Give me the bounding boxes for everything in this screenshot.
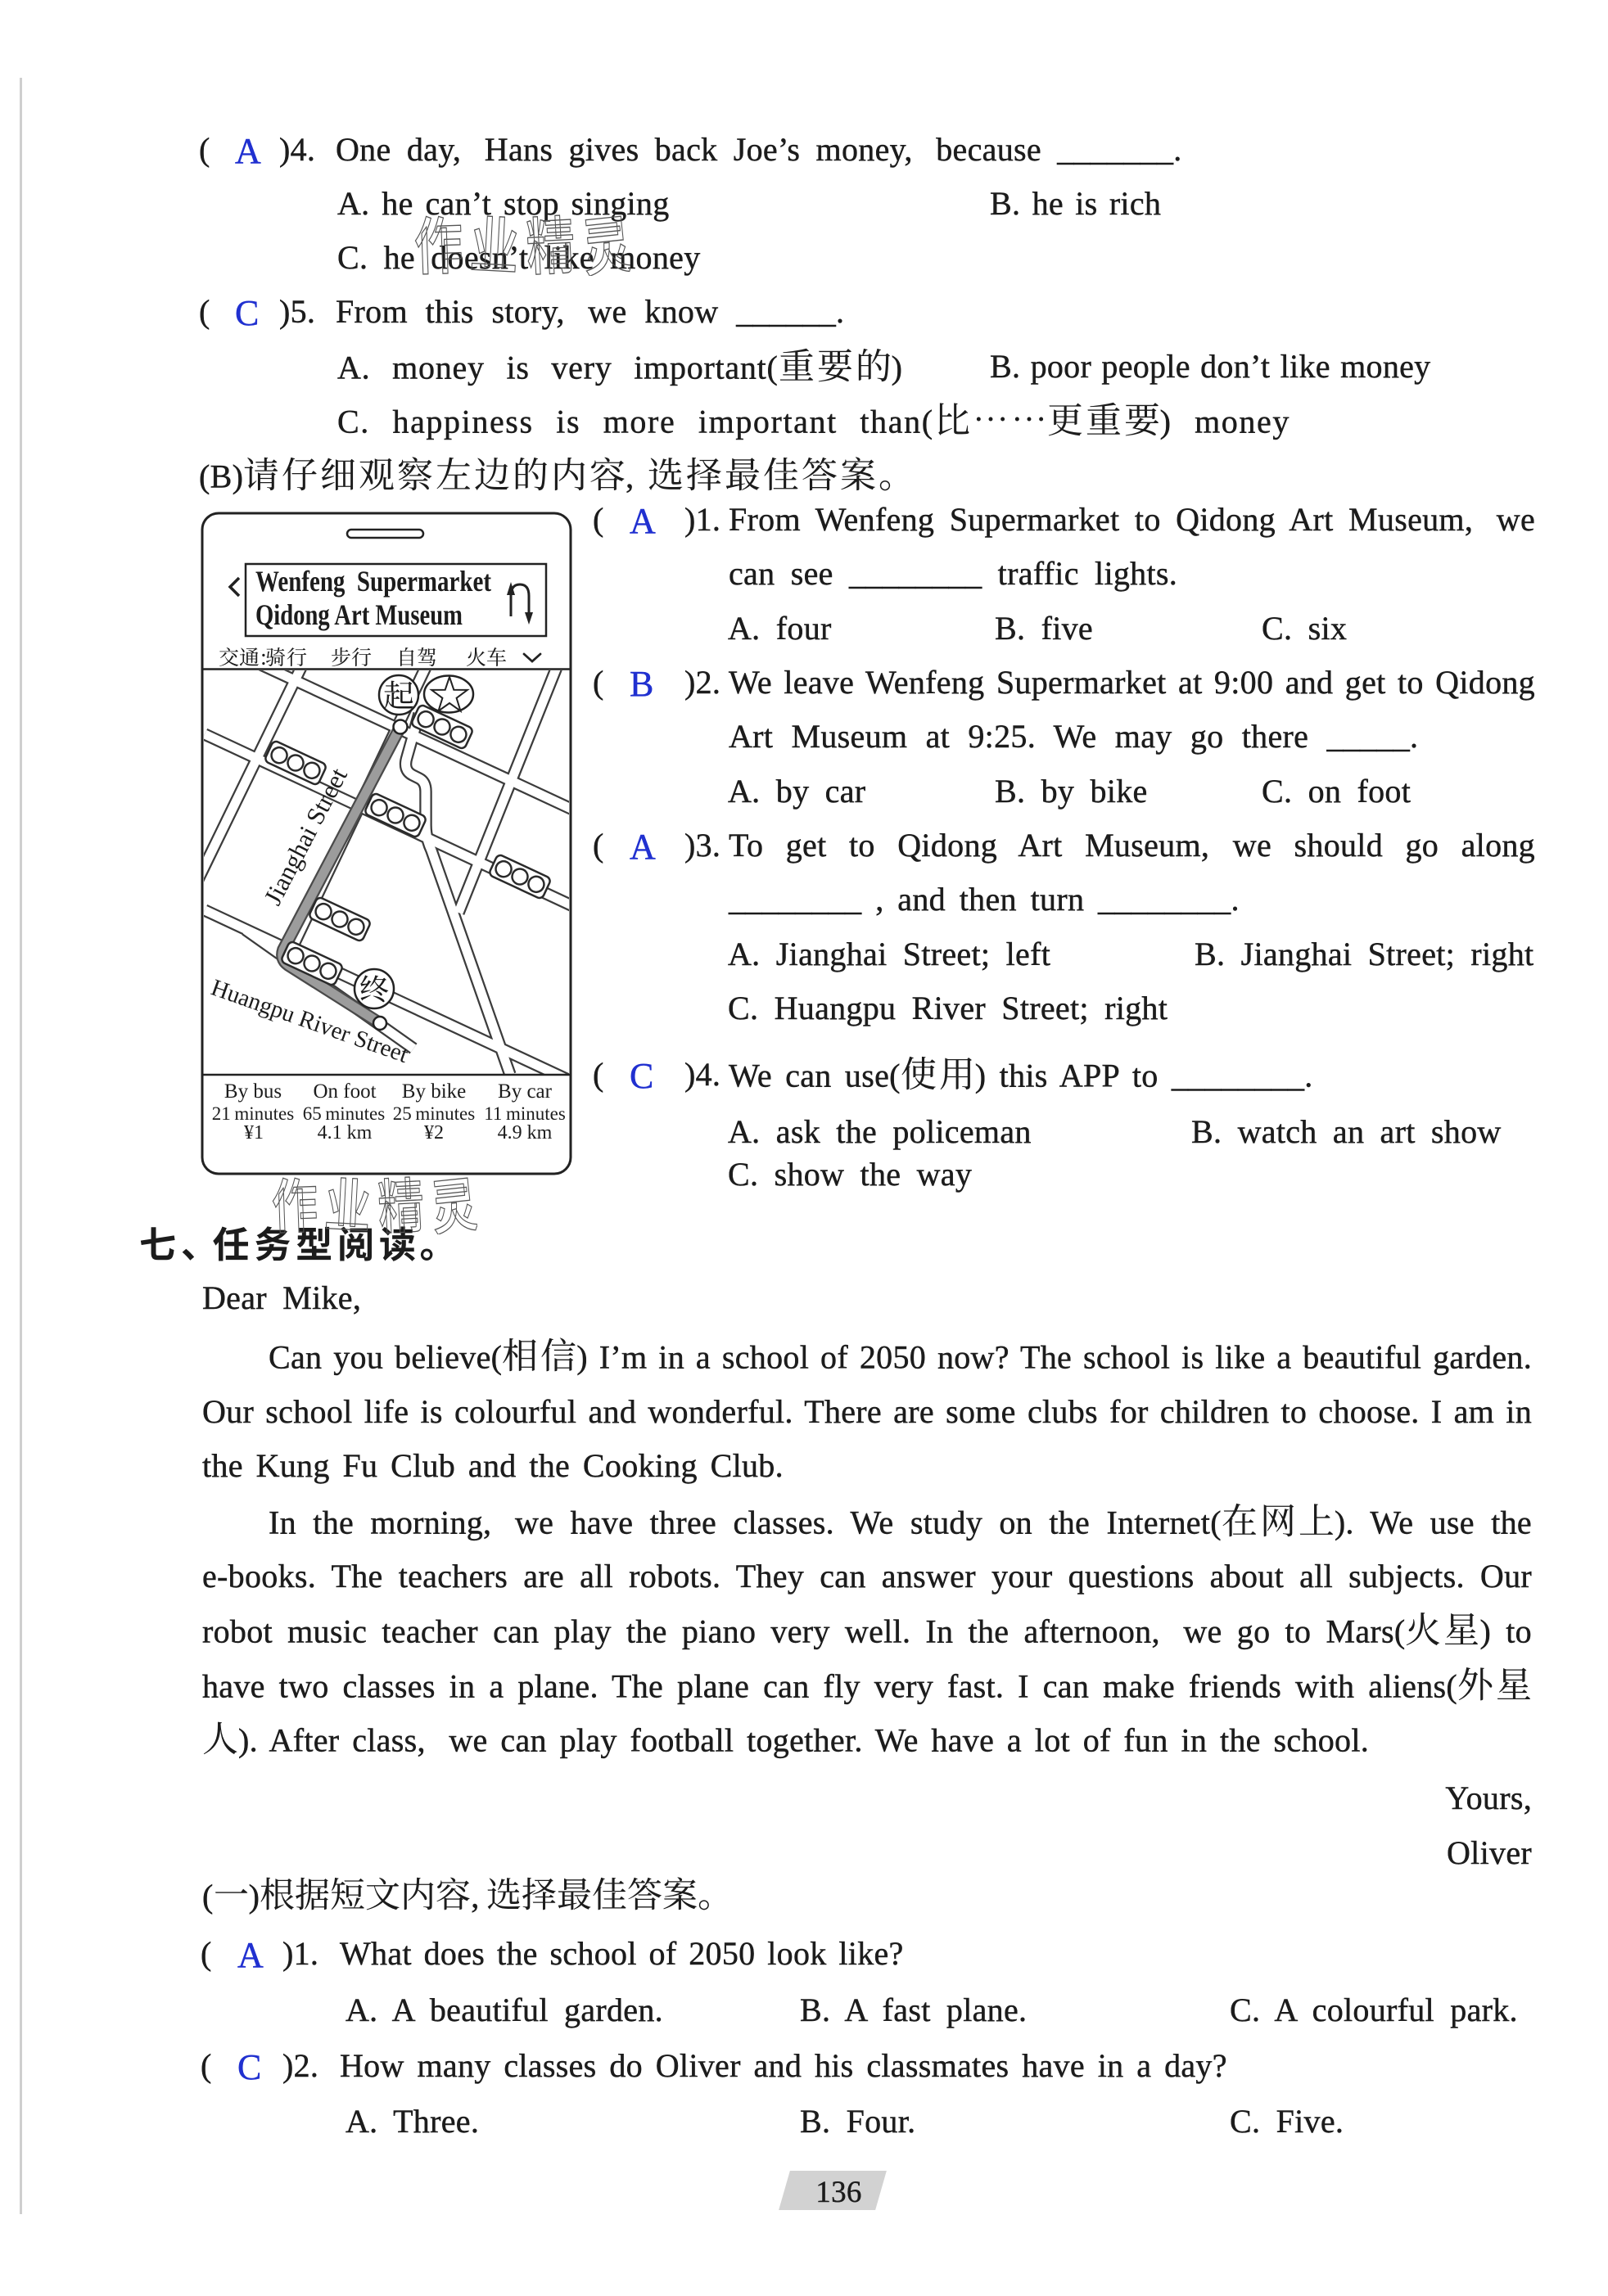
svg-text:¥1: ¥1 (244, 1122, 264, 1143)
svg-text:By bus: By bus (224, 1080, 282, 1103)
svg-text:Qidong Art Museum: Qidong Art Museum (255, 598, 463, 631)
svg-text:65 minutes: 65 minutes (303, 1103, 385, 1124)
svg-text:By bike: By bike (402, 1080, 466, 1103)
svg-text:Wenfeng Supermarket: Wenfeng Supermarket (255, 565, 491, 598)
svg-text:11 minutes: 11 minutes (484, 1103, 566, 1124)
svg-text::: : (260, 645, 267, 670)
svg-text:4.1 km: 4.1 km (318, 1122, 373, 1143)
svg-text:4.9 km: 4.9 km (498, 1122, 553, 1143)
svg-text:¥2: ¥2 (424, 1122, 444, 1143)
svg-text:By car: By car (498, 1080, 553, 1103)
svg-text:25 minutes: 25 minutes (393, 1103, 475, 1124)
svg-text:21 minutes: 21 minutes (212, 1103, 294, 1124)
svg-text:On foot: On foot (313, 1080, 376, 1103)
